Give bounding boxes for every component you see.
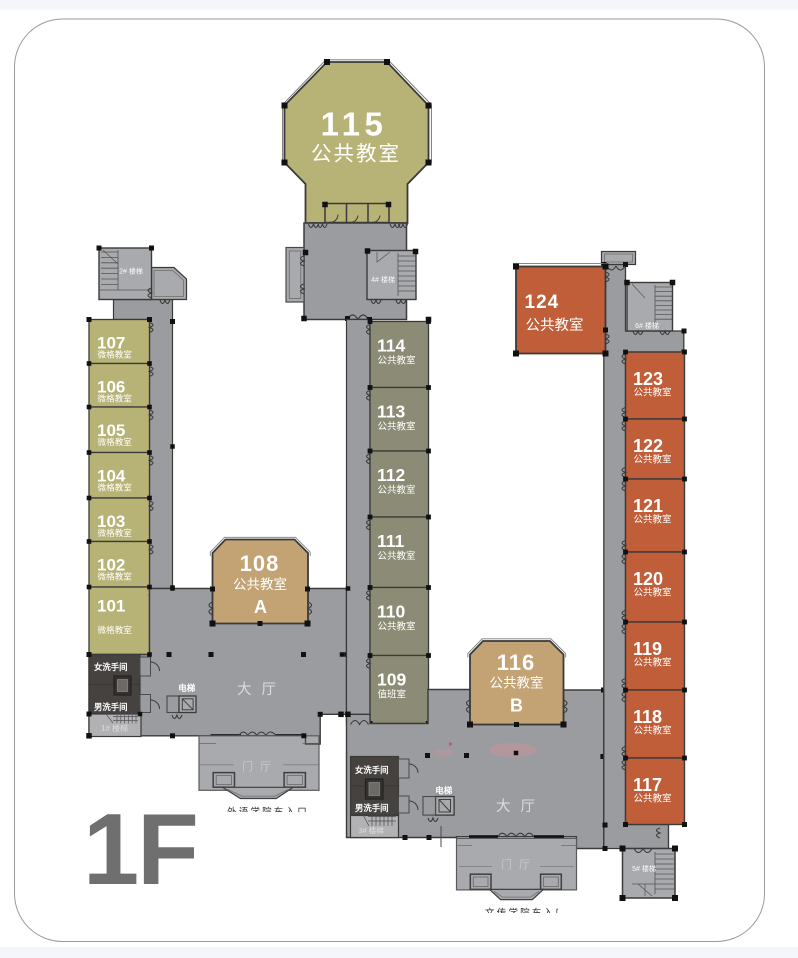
svg-text:114: 114	[377, 336, 405, 356]
svg-text:大 厅: 大 厅	[237, 681, 279, 698]
svg-text:122: 122	[633, 436, 663, 456]
svg-text:112: 112	[377, 465, 405, 485]
svg-text:公共教室: 公共教室	[378, 621, 416, 633]
svg-text:4# 楼梯: 4# 楼梯	[371, 275, 395, 284]
svg-text:公共教室: 公共教室	[634, 514, 672, 526]
svg-text:119: 119	[633, 639, 662, 659]
svg-text:115: 115	[321, 106, 388, 143]
svg-text:男洗手间: 男洗手间	[94, 702, 128, 712]
svg-text:微格教室: 微格教室	[98, 436, 133, 447]
svg-text:116: 116	[497, 650, 536, 675]
svg-text:女洗手间: 女洗手间	[94, 662, 128, 672]
svg-text:公共教室: 公共教室	[233, 576, 287, 592]
svg-text:109: 109	[377, 670, 406, 690]
svg-text:101: 101	[97, 597, 125, 616]
svg-text:118: 118	[633, 707, 662, 727]
svg-text:6# 楼梯: 6# 楼梯	[635, 321, 659, 330]
svg-text:男洗手间: 男洗手间	[355, 803, 389, 813]
svg-text:公共教室: 公共教室	[634, 657, 672, 669]
svg-text:121: 121	[633, 496, 663, 516]
svg-text:微格教室: 微格教室	[98, 527, 133, 538]
svg-text:门 厅: 门 厅	[242, 759, 273, 773]
svg-text:公共教室: 公共教室	[634, 454, 672, 466]
svg-text:公共教室: 公共教室	[634, 725, 672, 737]
svg-text:公共教室: 公共教室	[378, 550, 416, 562]
svg-text:120: 120	[633, 569, 663, 589]
svg-text:公共教室: 公共教室	[634, 793, 672, 805]
svg-text:公共教室: 公共教室	[526, 317, 584, 334]
svg-text:电梯: 电梯	[435, 786, 453, 796]
svg-text:2# 楼梯: 2# 楼梯	[119, 267, 143, 276]
svg-text:113: 113	[377, 402, 405, 422]
svg-text:微格教室: 微格教室	[98, 482, 133, 493]
svg-text:110: 110	[377, 602, 405, 622]
svg-text:111: 111	[377, 531, 405, 551]
svg-text:门 厅: 门 厅	[501, 857, 532, 871]
svg-text:1F: 1F	[83, 794, 197, 906]
svg-text:大 厅: 大 厅	[496, 798, 538, 815]
svg-text:124: 124	[525, 292, 560, 313]
svg-text:值班室: 值班室	[378, 689, 407, 701]
svg-text:3# 楼梯: 3# 楼梯	[358, 825, 384, 835]
svg-text:公共教室: 公共教室	[378, 484, 416, 496]
svg-text:微格教室: 微格教室	[98, 349, 133, 360]
svg-text:公共教室: 公共教室	[311, 143, 401, 166]
svg-text:公共教室: 公共教室	[490, 675, 544, 691]
svg-text:108: 108	[240, 551, 280, 576]
svg-text:女洗手间: 女洗手间	[355, 765, 389, 775]
svg-text:微格教室: 微格教室	[98, 393, 133, 404]
svg-text:公共教室: 公共教室	[634, 587, 672, 599]
svg-text:公共教室: 公共教室	[634, 387, 672, 399]
svg-text:微格教室: 微格教室	[98, 571, 133, 582]
svg-text:公共教室: 公共教室	[378, 421, 416, 433]
svg-text:117: 117	[633, 775, 662, 795]
svg-text:5# 楼梯: 5# 楼梯	[632, 864, 656, 873]
svg-text:电梯: 电梯	[178, 683, 196, 693]
svg-text:123: 123	[633, 369, 663, 389]
svg-text:A: A	[254, 597, 267, 617]
svg-text:微格教室: 微格教室	[98, 624, 133, 635]
svg-text:B: B	[510, 696, 523, 716]
svg-text:1# 楼梯: 1# 楼梯	[101, 723, 128, 733]
svg-text:公共教室: 公共教室	[378, 355, 416, 367]
